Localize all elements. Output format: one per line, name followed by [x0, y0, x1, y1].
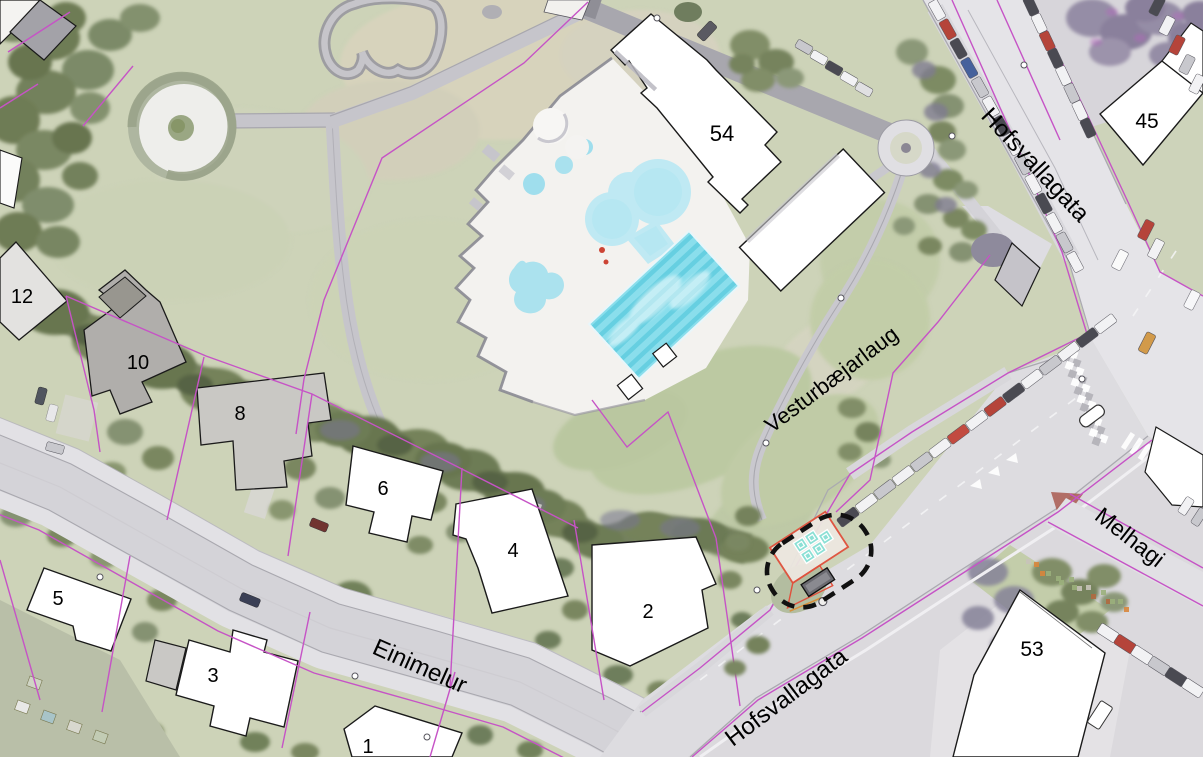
svg-text:1: 1 — [362, 736, 373, 757]
svg-text:4: 4 — [507, 540, 518, 562]
svg-text:53: 53 — [1020, 638, 1043, 661]
svg-text:2: 2 — [642, 601, 653, 623]
svg-text:6: 6 — [377, 478, 388, 500]
svg-text:5: 5 — [52, 588, 63, 610]
svg-text:45: 45 — [1135, 110, 1158, 133]
svg-text:12: 12 — [11, 286, 33, 308]
svg-text:3: 3 — [207, 665, 218, 687]
svg-text:10: 10 — [127, 352, 149, 374]
svg-text:54: 54 — [710, 121, 734, 146]
svg-text:8: 8 — [234, 403, 245, 425]
